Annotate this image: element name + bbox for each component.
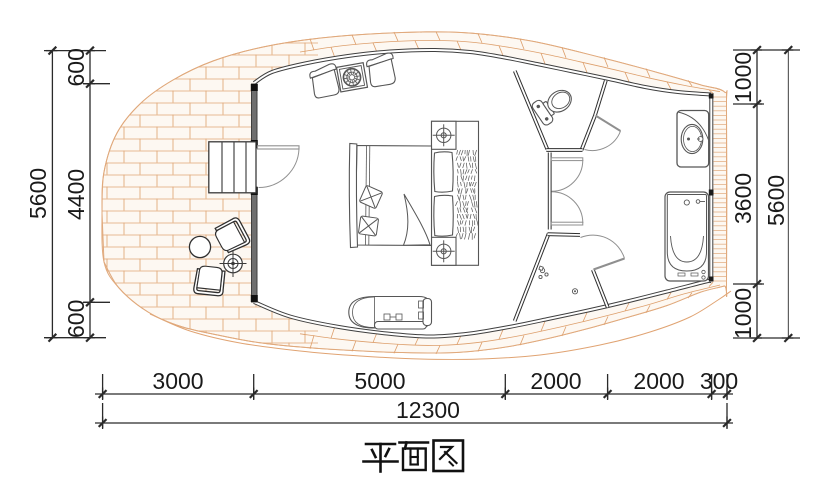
svg-text:2000: 2000 xyxy=(633,368,684,394)
svg-text:12300: 12300 xyxy=(396,397,460,423)
svg-text:1000: 1000 xyxy=(730,288,756,339)
svg-text:2000: 2000 xyxy=(530,368,581,394)
svg-text:3600: 3600 xyxy=(730,173,756,224)
svg-text:600: 600 xyxy=(63,300,89,338)
svg-text:5600: 5600 xyxy=(25,168,51,219)
svg-text:3000: 3000 xyxy=(152,368,203,394)
svg-text:5600: 5600 xyxy=(763,175,789,226)
svg-text:300: 300 xyxy=(700,368,738,394)
svg-text:4400: 4400 xyxy=(63,169,89,220)
svg-text:5000: 5000 xyxy=(354,368,405,394)
svg-text:600: 600 xyxy=(63,48,89,86)
svg-text:1000: 1000 xyxy=(730,52,756,103)
